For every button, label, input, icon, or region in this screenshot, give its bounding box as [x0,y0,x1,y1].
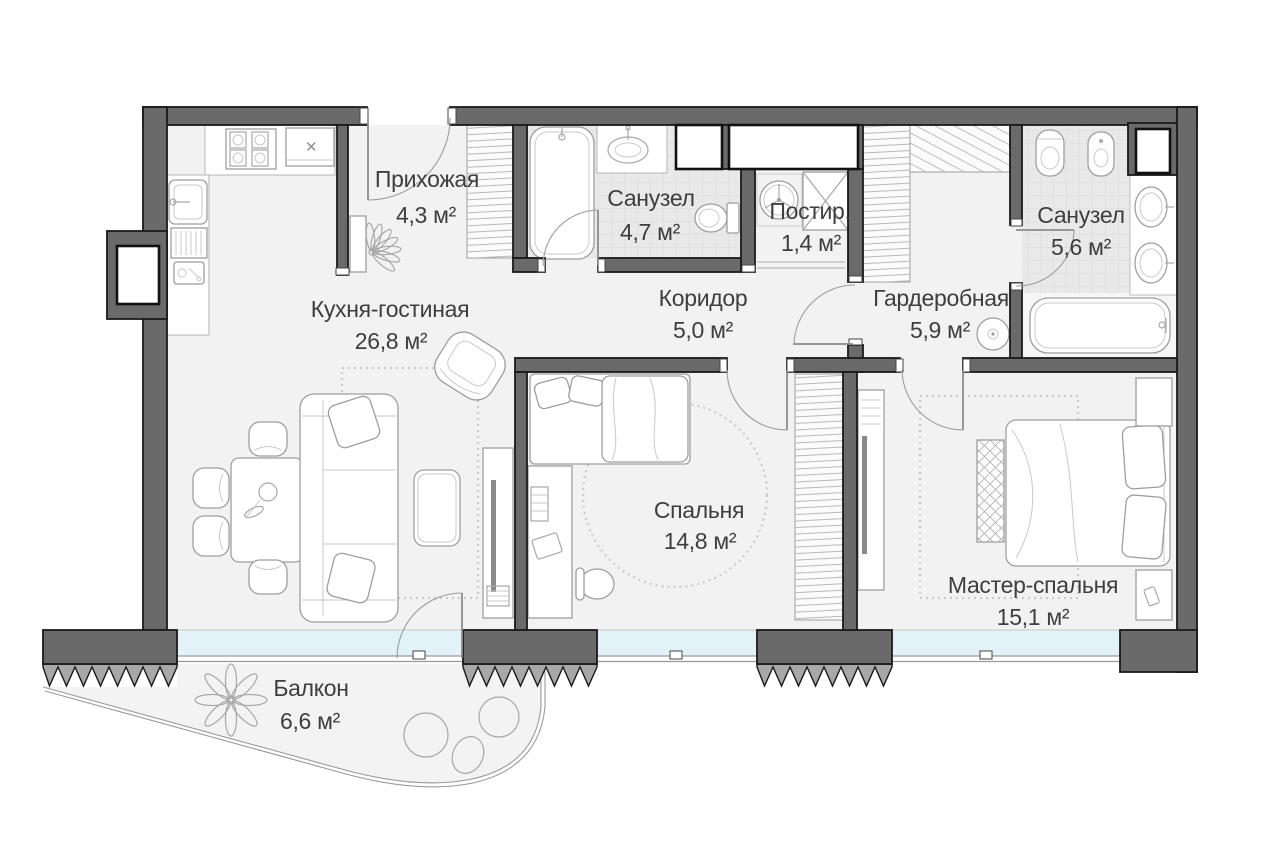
hallway-console [350,216,366,272]
kitchen-living-name: Кухня-гостиная [311,296,470,322]
shaft-box-mid-2 [729,125,858,169]
wardrobe-closet-left [863,125,910,282]
pouf-icon [977,318,1009,350]
bedroom-area: 14,8 м² [664,528,737,554]
coffee-table [414,470,460,546]
windows [167,630,1177,662]
dining-chair [193,516,229,556]
window-mullion [670,651,682,659]
bathroom-1-name: Санузел [607,185,695,211]
desk-chair [576,568,614,600]
hood-icon: ✕ [286,128,334,166]
floor-plan-page: ✕ [0,0,1280,858]
toilet-icon [695,203,739,233]
hallway-name: Прихожая [375,166,479,192]
bathroom-2-name: Санузел [1037,202,1125,228]
hood-cross-glyph: ✕ [305,139,318,156]
hallway-area: 4,3 м² [396,202,457,228]
wall-masterbath-bottom [963,358,1177,372]
bed-single [530,374,690,464]
floor-plan-drawing: ✕ [0,0,1280,858]
dining-chair [249,422,287,456]
dining-table [231,458,303,562]
shaft-box-mid-1 [676,125,722,169]
kitchen-living-area: 26,8 м² [355,328,428,354]
shaft-box-right [1136,129,1170,173]
stove-icon [226,129,276,169]
window-mullion [413,651,425,659]
wall-wardrobe-bath2-top [1010,125,1022,225]
shaft-box-left [117,246,159,304]
bathtub-icon [530,127,594,259]
window-band-master [892,630,1120,656]
bathtub-icon [1030,298,1170,353]
tv-console [483,448,513,618]
tv-icon [491,480,496,592]
wardrobe-name: Гардеробная [873,285,1009,311]
laundry-name: Постир. [769,198,850,224]
balcony-area: 6,6 м² [280,708,341,734]
sofa [300,394,398,622]
desk [528,466,572,618]
master-bedroom-name: Мастер-спальня [948,572,1118,598]
wall-laundry-wardrobe [848,168,863,282]
bed-pillow [1122,425,1166,490]
dishwasher-icon [171,228,207,258]
wall-bedroom-top [515,358,727,372]
dining-chair [193,468,229,508]
bed-double [1006,420,1170,566]
coffee-machine-icon [174,262,204,284]
wall-top-right [450,107,1197,125]
wall-bathroom1-left [513,125,527,258]
balcony-name: Балкон [273,675,348,701]
wall-laundry-left [741,168,755,272]
corridor-name: Коридор [659,285,748,311]
toilet-icon [1036,130,1064,176]
pier-middle [463,630,597,664]
bedroom-wardrobe [795,374,843,620]
master-tv-console [858,390,884,590]
wall-bathroom1-bottom-right [598,258,741,272]
tv-icon [862,436,867,554]
master-bedroom-area: 15,1 м² [997,604,1070,630]
bathroom-2-area: 5,6 м² [1051,234,1112,260]
window-mullion [980,651,992,659]
wardrobe-area: 5,9 м² [910,317,971,343]
bed-bench [977,440,1004,542]
dining-chair [249,560,287,594]
bathroom-1-area: 4,7 м² [620,219,681,245]
pier-left [43,630,177,664]
corridor-area: 5,0 м² [673,317,734,343]
wall-top-left [143,107,367,125]
wall-kitchen-hallway [337,125,348,275]
wall-bedroom-left [515,372,527,630]
wall-corridor-south [787,358,900,372]
wall-right [1177,107,1197,672]
nightstand [1136,378,1172,426]
pier-right [757,630,892,664]
kitchen-sink-icon [169,180,207,224]
laundry-area: 1,4 м² [781,230,842,256]
bedroom-name: Спальня [654,497,744,523]
bidet-icon [1088,132,1114,176]
wall-bottom-right-corner [1120,630,1197,672]
bed-pillow [1121,494,1166,559]
wardrobe-closet-top [910,125,1010,172]
nightstand [1136,570,1172,620]
wall-bedroom-master [843,372,857,630]
wall-wardrobe-bath2-bottom [1010,283,1022,358]
wall-left [143,107,167,630]
